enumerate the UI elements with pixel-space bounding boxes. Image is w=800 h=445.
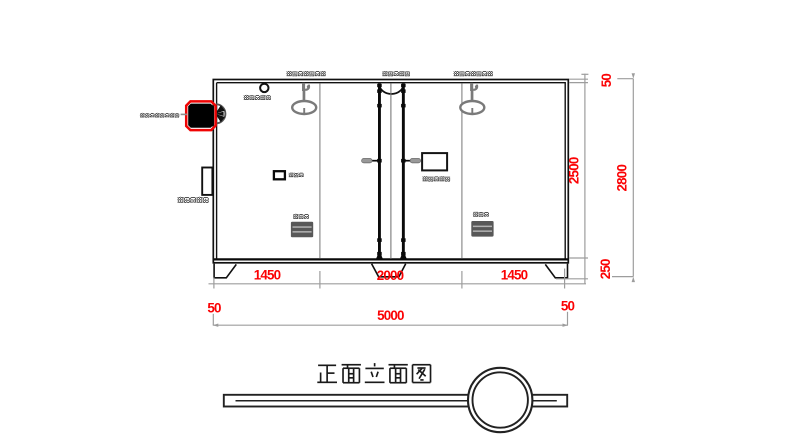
- svg-text:1450: 1450: [501, 267, 528, 282]
- svg-text:50: 50: [599, 74, 614, 88]
- svg-text:1450: 1450: [254, 267, 281, 282]
- svg-text:250: 250: [598, 259, 613, 279]
- svg-text:2800: 2800: [614, 165, 629, 192]
- svg-text:2000: 2000: [377, 268, 404, 283]
- svg-text:5000: 5000: [377, 308, 404, 323]
- svg-text:50: 50: [207, 301, 221, 316]
- svg-text:2500: 2500: [566, 157, 581, 184]
- svg-text:50: 50: [561, 299, 575, 314]
